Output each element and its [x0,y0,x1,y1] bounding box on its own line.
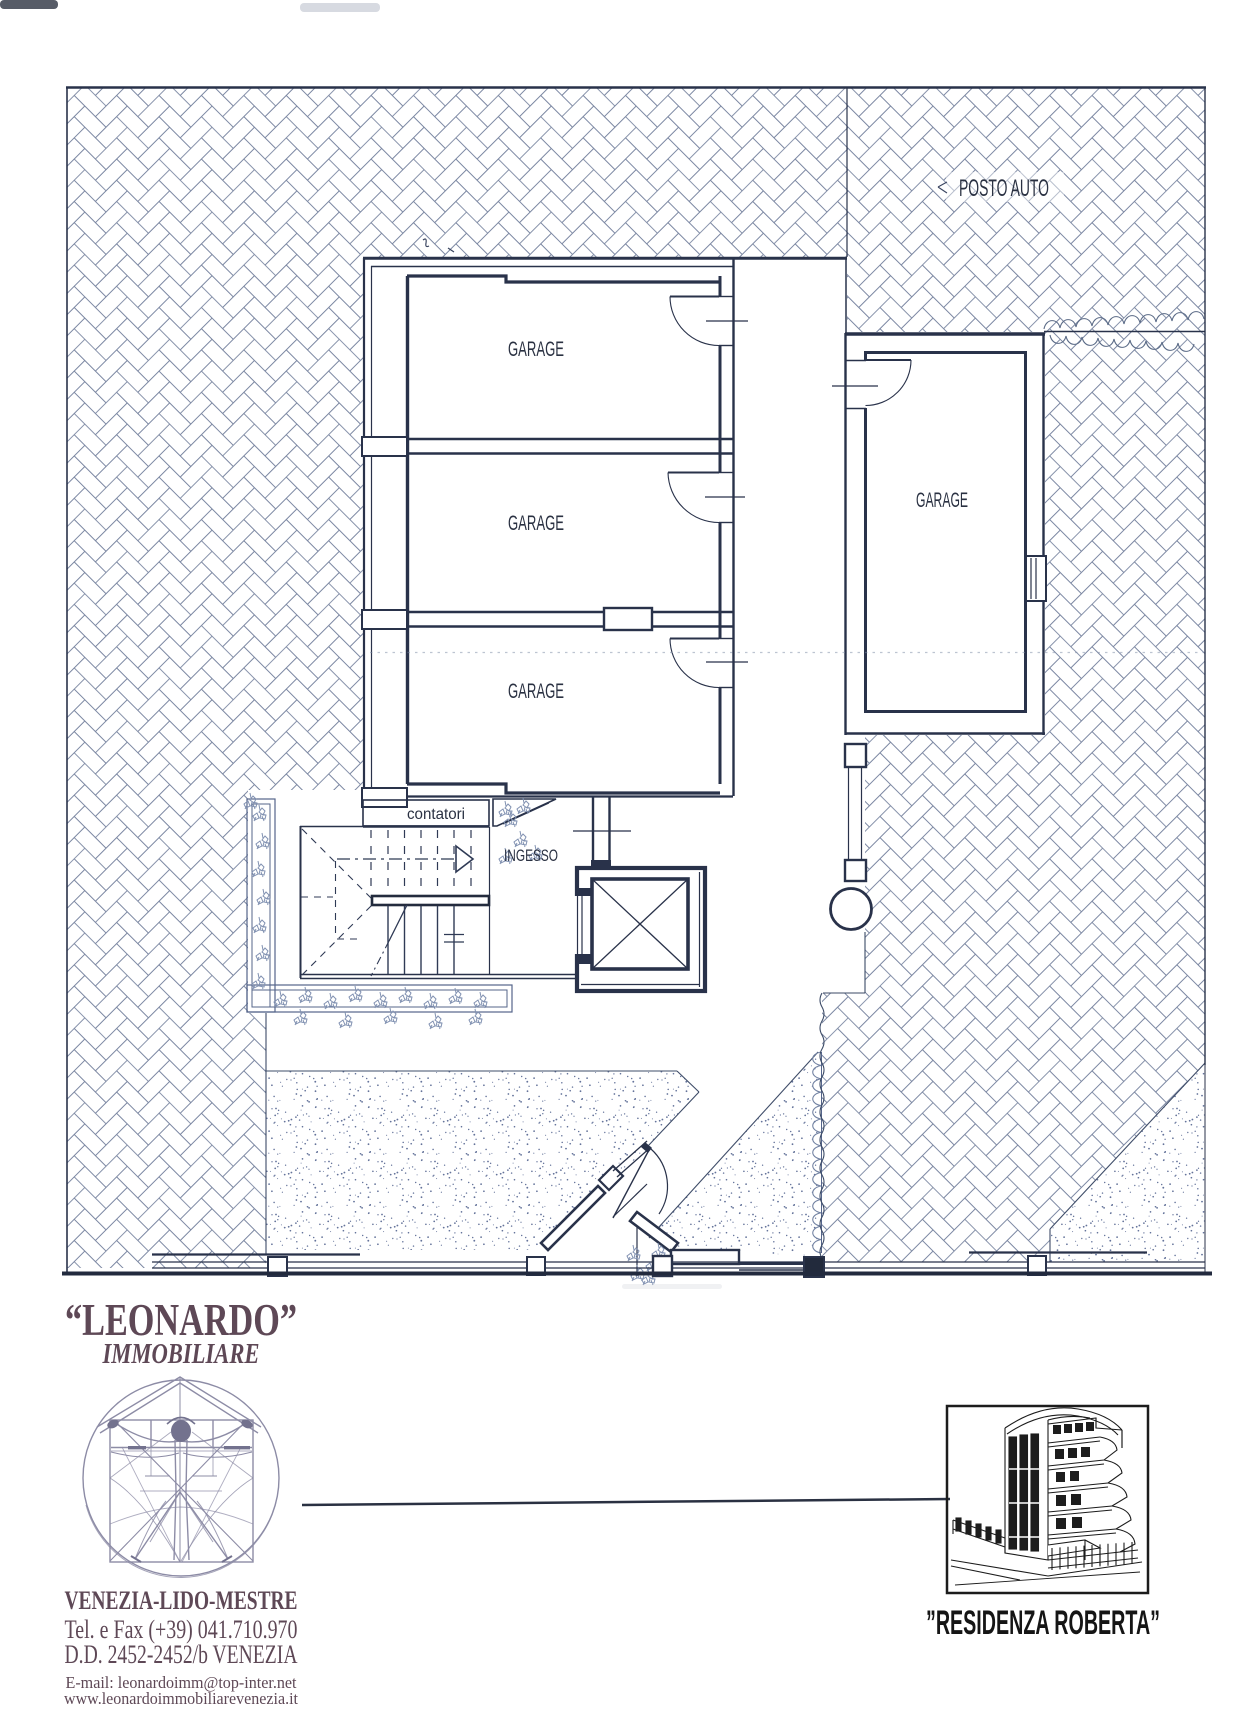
svg-text:IMMOBILIARE: IMMOBILIARE [102,1339,260,1370]
svg-text:D.D. 2452-2452/b VENEZIA: D.D. 2452-2452/b VENEZIA [65,1640,298,1669]
svg-text:“LEONARDO”: “LEONARDO” [65,1295,297,1345]
svg-text:GARAGE: GARAGE [508,512,564,535]
svg-text:www.leonardoimmobiliarevenezia: www.leonardoimmobiliarevenezia.it [64,1689,298,1708]
svg-text:”RESIDENZA ROBERTA”: ”RESIDENZA ROBERTA” [926,1604,1160,1642]
svg-text:contatori: contatori [407,806,465,823]
svg-text:GARAGE: GARAGE [916,489,968,512]
svg-text:INGESSO: INGESSO [504,847,558,865]
svg-text:GARAGE: GARAGE [508,680,564,703]
svg-text:GARAGE: GARAGE [508,338,564,361]
svg-text:VENEZIA-LIDO-MESTRE: VENEZIA-LIDO-MESTRE [65,1586,298,1615]
svg-text:POSTO AUTO: POSTO AUTO [959,175,1049,202]
